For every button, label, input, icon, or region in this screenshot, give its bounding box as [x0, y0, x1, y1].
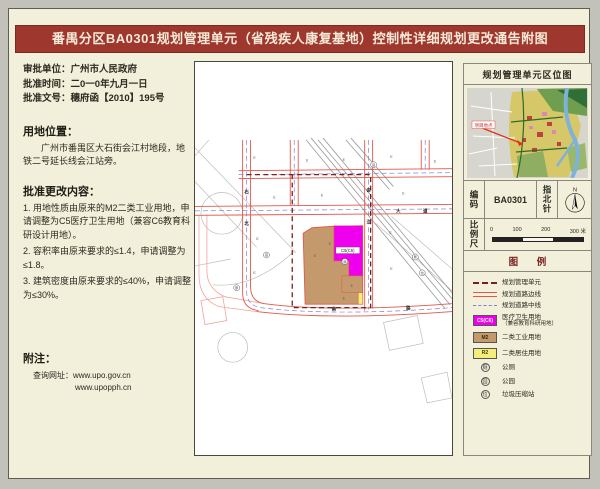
code-label: 编码: [468, 190, 480, 209]
legend-title: 图 例: [464, 251, 591, 272]
road-centerline-icon: [473, 305, 497, 306]
change-item-3: 3. 建筑密度由原来要求的≤40%，申请调整为≤30%。: [23, 275, 193, 302]
legend-item-c5: C5(C6) 医疗卫生用地 （兼容教育科研用地）: [473, 314, 588, 328]
plan-map: C5(C6) 厕 园 厕 垃 园 厕 E E E E: [195, 62, 452, 455]
svg-text:E: E: [434, 160, 437, 164]
legend-item-road-center: 规划道路中线: [473, 302, 588, 309]
legend-item-park: 园 公园: [473, 377, 588, 386]
park-icon: 园: [481, 377, 490, 386]
legend-item-planning-unit: 规划管理单元: [473, 279, 588, 286]
svg-text:厕: 厕: [343, 260, 346, 264]
info-panel: 审批单位：广州市人民政府 批准时间：二0一0年九月一日 批准文号：穗府函【201…: [23, 63, 193, 392]
garbage-station-icon: 垃: [481, 390, 490, 399]
parcel-r2-residential: [358, 293, 362, 304]
svg-text:北: 北: [244, 220, 249, 227]
svg-text:E: E: [253, 156, 256, 160]
m2-swatch: M2: [473, 332, 497, 343]
location-text: 广州市番禺区大石街会江村地段，地铁二号延长线会江站旁。: [23, 142, 193, 169]
sidebar-panel: 规划管理单元区位图: [463, 63, 592, 456]
svg-text:石: 石: [243, 189, 249, 196]
svg-text:南: 南: [332, 306, 337, 313]
svg-text:会: 会: [365, 187, 371, 194]
change-item-1: 1. 用地性质由原来的M2二类工业用地，申请调整为C5医疗卫生用地（兼容C6教育…: [23, 202, 193, 243]
svg-text:园: 园: [372, 162, 375, 167]
svg-text:E: E: [256, 237, 259, 241]
scale-bar: 0 100 200 300 米: [485, 219, 591, 250]
location-map: 项目地点: [464, 85, 591, 181]
svg-text:道: 道: [423, 207, 428, 214]
svg-text:E: E: [253, 271, 256, 275]
legend-item-m2: M2 二类工业用地: [473, 332, 588, 343]
svg-text:E: E: [306, 159, 309, 163]
location-heading: 用地位置：: [23, 123, 193, 139]
scale-row: 比例尺 0 100 200 300 米: [464, 219, 591, 251]
legend: 规划管理单元 规划道路边线 规划道路中线 C5(C6) 医疗卫生用地 （兼容教育…: [464, 272, 591, 455]
location-map-image: 项目地点: [467, 88, 588, 178]
svg-text:E: E: [390, 155, 393, 159]
scale-label: 比例尺: [468, 220, 480, 249]
project-location-label: 项目地点: [475, 122, 493, 129]
query-url-1: 查询网址：www.upo.gov.cn: [33, 370, 193, 381]
public-toilet-icon: 厕: [481, 363, 490, 372]
svg-text:园: 园: [265, 252, 268, 257]
approval-time: 批准时间：二0一0年九月一日: [23, 78, 193, 93]
query-url-2: www.upopph.cn: [75, 383, 193, 392]
changes-heading: 批准更改内容：: [23, 183, 193, 199]
approval-doc: 批准文号：穗府函【2010】195号: [23, 92, 193, 107]
legend-item-road-edge: 规划道路边线: [473, 291, 588, 298]
scale-tick-100: 100: [513, 227, 522, 235]
page-title: 番禺分区BA0301规划管理单元（省残疾人康复基地）控制性详细规划更改通告附图: [15, 25, 585, 53]
change-item-2: 2. 容积率由原来要求的≤1.4，申请调整为≤1.8。: [23, 245, 193, 272]
svg-text:E: E: [390, 267, 393, 271]
legend-item-garbage: 垃 垃圾压缩站: [473, 390, 588, 399]
svg-text:垃: 垃: [421, 270, 424, 275]
r2-swatch: R2: [473, 348, 497, 359]
svg-text:C5(C6): C5(C6): [341, 248, 355, 253]
svg-text:E: E: [321, 193, 324, 197]
notice-page: 番禺分区BA0301规划管理单元（省残疾人康复基地）控制性详细规划更改通告附图 …: [8, 8, 590, 479]
scale-tick-200: 200: [541, 227, 550, 235]
scale-tick-300: 300 米: [570, 227, 586, 235]
svg-text:E: E: [343, 158, 346, 162]
svg-text:大: 大: [396, 207, 401, 214]
planning-unit-line-icon: [473, 282, 497, 284]
svg-text:N: N: [572, 187, 576, 193]
unit-code: BA0301: [485, 181, 537, 218]
location-map-title: 规划管理单元区位图: [464, 64, 591, 85]
svg-text:厕: 厕: [414, 255, 417, 259]
note-heading: 附注：: [23, 350, 193, 366]
compass: N: [558, 181, 591, 218]
c5-swatch: C5(C6): [473, 315, 497, 326]
svg-text:E: E: [402, 191, 405, 195]
road-edge-line-icon: [473, 292, 497, 297]
svg-text:E: E: [273, 195, 276, 199]
svg-text:江: 江: [366, 218, 371, 225]
approval-unit: 审批单位：广州市人民政府: [23, 63, 193, 78]
scale-tick-0: 0: [490, 227, 493, 235]
svg-text:路: 路: [406, 305, 411, 312]
legend-item-r2: R2 二类居住用地: [473, 348, 588, 359]
plan-map-panel: C5(C6) 厕 园 厕 垃 园 厕 E E E E: [194, 61, 453, 456]
legend-item-toilet: 厕 公厕: [473, 363, 588, 372]
scale-bar-graphic: [492, 237, 584, 242]
svg-text:厕: 厕: [235, 286, 238, 290]
code-north-row: 编码 BA0301 指北针 N: [464, 181, 591, 219]
north-arrow-label: 指北针: [541, 185, 553, 214]
north-arrow-icon: N: [561, 185, 589, 215]
